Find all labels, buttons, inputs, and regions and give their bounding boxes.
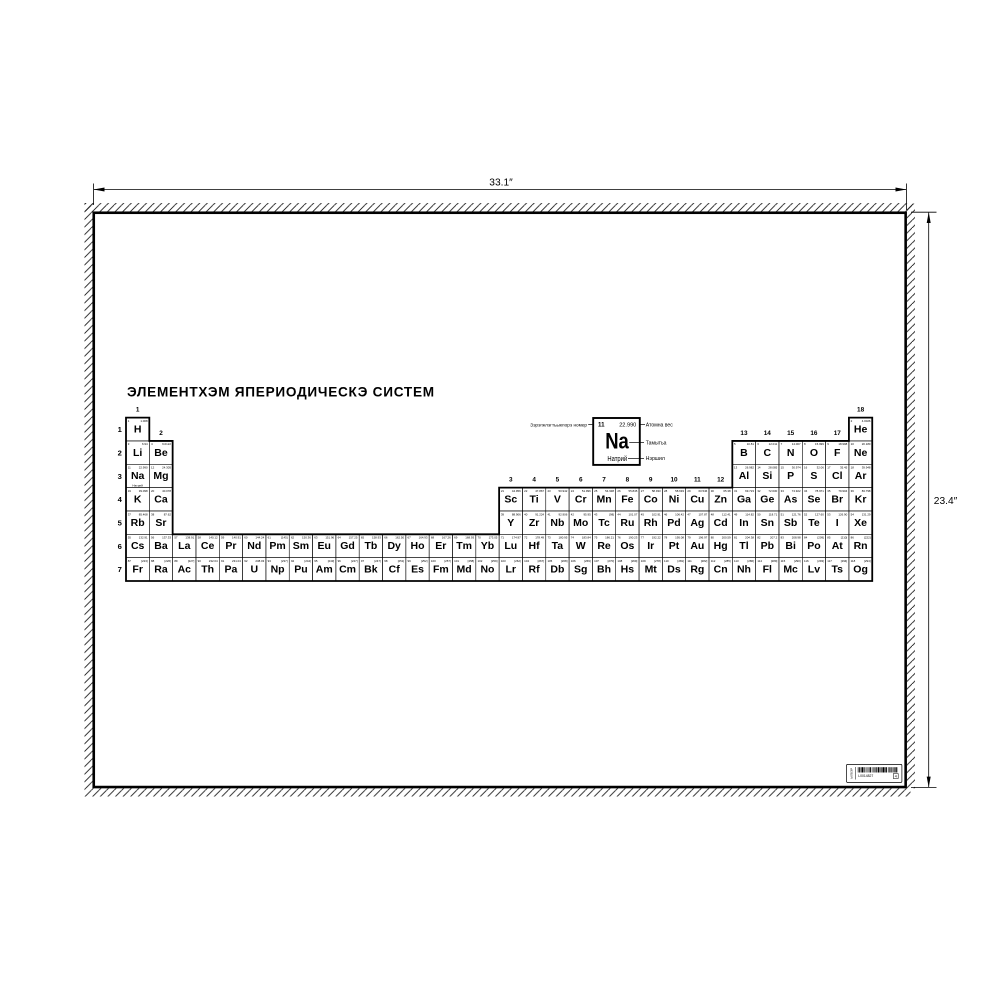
svg-text:Pt: Pt — [669, 540, 680, 552]
svg-text:97: 97 — [361, 559, 365, 563]
svg-text:13: 13 — [734, 466, 738, 470]
svg-text:Gd: Gd — [340, 540, 355, 552]
svg-text:101: 101 — [454, 559, 459, 563]
svg-text:12.011: 12.011 — [769, 442, 778, 446]
svg-text:Зэрэгжлэгтьыклорэ номер: Зэрэгжлэгтьыклорэ номер — [530, 422, 587, 427]
svg-text:Fl: Fl — [763, 564, 772, 576]
svg-text:Ne: Ne — [854, 447, 868, 459]
svg-text:Am: Am — [316, 564, 333, 576]
svg-text:78.971: 78.971 — [815, 489, 824, 493]
svg-text:Ba: Ba — [154, 540, 168, 552]
svg-text:Hf: Hf — [529, 540, 541, 552]
svg-text:Tc: Tc — [598, 517, 610, 529]
svg-text:192.22: 192.22 — [652, 536, 661, 540]
svg-text:35: 35 — [827, 489, 831, 493]
svg-text:72.630: 72.630 — [768, 489, 777, 493]
svg-text:36: 36 — [851, 489, 855, 493]
svg-text:7: 7 — [118, 565, 122, 574]
svg-text:183.84: 183.84 — [582, 536, 591, 540]
svg-text:27: 27 — [641, 489, 645, 493]
svg-text:178.49: 178.49 — [535, 536, 544, 540]
svg-text:Cf: Cf — [389, 564, 401, 576]
svg-text:126.90: 126.90 — [838, 512, 847, 516]
svg-text:Co: Co — [644, 494, 658, 506]
svg-text:15.999: 15.999 — [815, 442, 824, 446]
svg-text:9: 9 — [649, 477, 653, 484]
svg-text:174.97: 174.97 — [512, 536, 521, 540]
svg-text:Ac: Ac — [178, 564, 192, 576]
svg-text:[244]: [244] — [304, 559, 311, 563]
svg-text:Er: Er — [435, 540, 446, 552]
svg-text:Rb: Rb — [131, 517, 145, 529]
svg-text:93: 93 — [268, 559, 272, 563]
svg-text:W: W — [576, 540, 586, 552]
svg-text:238.03: 238.03 — [255, 559, 264, 563]
svg-text:24: 24 — [571, 489, 575, 493]
svg-text:79.904: 79.904 — [838, 489, 847, 493]
svg-text:Ta: Ta — [552, 540, 564, 552]
svg-text:95: 95 — [314, 559, 318, 563]
svg-text:21: 21 — [501, 489, 505, 493]
svg-text:6: 6 — [118, 542, 122, 551]
svg-text:Os: Os — [620, 540, 634, 552]
svg-text:19: 19 — [128, 489, 132, 493]
svg-text:18.998: 18.998 — [838, 442, 847, 446]
svg-text:Pb: Pb — [761, 540, 774, 552]
svg-text:[270]: [270] — [608, 559, 615, 563]
svg-text:87: 87 — [128, 559, 132, 563]
svg-text:54.938: 54.938 — [605, 489, 614, 493]
svg-text:Rf: Rf — [529, 564, 541, 576]
svg-text:Ds: Ds — [667, 564, 681, 576]
svg-text:[269]: [269] — [584, 559, 591, 563]
svg-text:232.04: 232.04 — [209, 559, 218, 563]
svg-text:[209]: [209] — [817, 536, 824, 540]
svg-text:ЫЛБЭР: ЫЛБЭР — [849, 768, 853, 779]
svg-text:Si: Si — [762, 470, 772, 482]
svg-text:Ts: Ts — [832, 564, 844, 576]
svg-text:121.76: 121.76 — [792, 512, 801, 516]
svg-text:Yb: Yb — [481, 540, 494, 552]
svg-text:14.007: 14.007 — [792, 442, 801, 446]
svg-text:23: 23 — [547, 489, 551, 493]
svg-text:16: 16 — [810, 430, 818, 437]
svg-text:131.29: 131.29 — [862, 512, 871, 516]
svg-text:98: 98 — [384, 559, 388, 563]
svg-text:L0014827: L0014827 — [858, 774, 873, 778]
svg-text:58: 58 — [198, 536, 202, 540]
svg-text:94: 94 — [291, 559, 295, 563]
svg-text:144.24: 144.24 — [255, 536, 264, 540]
svg-text:Fr: Fr — [132, 564, 143, 576]
svg-text:Cu: Cu — [690, 494, 704, 506]
svg-text:83: 83 — [781, 536, 785, 540]
svg-text:Pd: Pd — [667, 517, 680, 529]
svg-text:Se: Se — [808, 494, 821, 506]
svg-text:O: O — [810, 447, 818, 459]
svg-text:Tl: Tl — [739, 540, 748, 552]
svg-text:Bk: Bk — [364, 564, 378, 576]
svg-text:Rg: Rg — [690, 564, 704, 576]
svg-text:3: 3 — [509, 477, 513, 484]
svg-text:[227]: [227] — [188, 559, 195, 563]
svg-text:[222]: [222] — [864, 536, 871, 540]
svg-text:66: 66 — [384, 536, 388, 540]
svg-text:14: 14 — [757, 466, 761, 470]
svg-text:Cd: Cd — [714, 517, 728, 529]
svg-text:63: 63 — [314, 536, 318, 540]
svg-text:La: La — [178, 540, 190, 552]
svg-text:[267]: [267] — [538, 559, 545, 563]
svg-text:65.38: 65.38 — [723, 489, 731, 493]
svg-text:31: 31 — [734, 489, 738, 493]
svg-text:162.50: 162.50 — [395, 536, 404, 540]
svg-text:68: 68 — [431, 536, 435, 540]
svg-text:53: 53 — [827, 512, 831, 516]
svg-text:92.906: 92.906 — [559, 512, 568, 516]
svg-text:H: H — [134, 424, 142, 436]
svg-text:196.97: 196.97 — [698, 536, 707, 540]
svg-text:116: 116 — [804, 559, 809, 563]
svg-text:P: P — [787, 470, 794, 482]
svg-text:4: 4 — [895, 775, 897, 779]
svg-text:I: I — [836, 517, 839, 529]
svg-text:39: 39 — [501, 512, 505, 516]
svg-text:42: 42 — [571, 512, 575, 516]
svg-text:18: 18 — [851, 466, 855, 470]
svg-text:23.4″: 23.4″ — [934, 496, 958, 507]
svg-text:Натрий: Натрий — [607, 455, 627, 463]
svg-text:112.41: 112.41 — [722, 512, 731, 516]
svg-text:43: 43 — [594, 512, 598, 516]
svg-text:Натрий: Натрий — [132, 483, 143, 487]
svg-text:[285]: [285] — [724, 559, 731, 563]
svg-text:88: 88 — [151, 559, 155, 563]
svg-text:195.08: 195.08 — [675, 536, 684, 540]
svg-text:38: 38 — [151, 512, 155, 516]
svg-text:6.94: 6.94 — [142, 442, 148, 446]
svg-text:2: 2 — [118, 448, 122, 457]
svg-text:At: At — [832, 540, 844, 552]
svg-text:112: 112 — [711, 559, 716, 563]
svg-text:Sr: Sr — [155, 517, 166, 529]
svg-text:91: 91 — [221, 559, 225, 563]
svg-text:56: 56 — [151, 536, 155, 540]
svg-text:102: 102 — [478, 559, 483, 563]
svg-text:200.59: 200.59 — [722, 536, 731, 540]
svg-text:33: 33 — [781, 489, 785, 493]
svg-text:[258]: [258] — [468, 559, 475, 563]
svg-text:204.38: 204.38 — [745, 536, 754, 540]
svg-text:Sb: Sb — [784, 517, 797, 529]
svg-text:61: 61 — [268, 536, 272, 540]
svg-text:180.95: 180.95 — [559, 536, 568, 540]
svg-text:[243]: [243] — [328, 559, 335, 563]
svg-text:88.906: 88.906 — [512, 512, 521, 516]
svg-text:Db: Db — [550, 564, 564, 576]
svg-text:Тамытьа: Тамытьа — [646, 440, 667, 446]
svg-text:Kr: Kr — [855, 494, 867, 506]
svg-text:[247]: [247] — [351, 559, 358, 563]
svg-text:Zr: Zr — [529, 517, 540, 529]
svg-text:190.23: 190.23 — [628, 536, 637, 540]
svg-text:10.81: 10.81 — [747, 442, 755, 446]
svg-text:30.974: 30.974 — [792, 466, 801, 470]
svg-text:Cl: Cl — [832, 470, 843, 482]
svg-text:[269]: [269] — [631, 559, 638, 563]
svg-text:Pa: Pa — [225, 564, 238, 576]
svg-text:80: 80 — [711, 536, 715, 540]
svg-text:84: 84 — [804, 536, 808, 540]
svg-text:44.956: 44.956 — [512, 489, 521, 493]
svg-text:25: 25 — [594, 489, 598, 493]
svg-text:11: 11 — [128, 466, 131, 470]
svg-text:65: 65 — [361, 536, 365, 540]
svg-text:77: 77 — [641, 536, 645, 540]
svg-text:32.06: 32.06 — [817, 466, 825, 470]
svg-text:Md: Md — [457, 564, 472, 576]
svg-text:41: 41 — [547, 512, 551, 516]
svg-text:118.71: 118.71 — [769, 512, 778, 516]
svg-text:[294]: [294] — [864, 559, 871, 563]
svg-text:6: 6 — [579, 477, 583, 484]
svg-text:[262]: [262] — [514, 559, 521, 563]
svg-text:10: 10 — [670, 477, 678, 484]
svg-text:64: 64 — [338, 536, 342, 540]
svg-text:C: C — [764, 447, 772, 459]
svg-text:Te: Te — [808, 517, 820, 529]
svg-text:50.942: 50.942 — [559, 489, 568, 493]
svg-text:12: 12 — [717, 477, 725, 484]
svg-text:1: 1 — [136, 407, 140, 414]
svg-text:85.468: 85.468 — [139, 512, 148, 516]
svg-text:10: 10 — [851, 442, 855, 446]
svg-text:13: 13 — [740, 430, 748, 437]
svg-text:107.87: 107.87 — [698, 512, 707, 516]
svg-text:[286]: [286] — [748, 559, 755, 563]
svg-text:Pu: Pu — [294, 564, 307, 576]
svg-text:86: 86 — [851, 536, 855, 540]
svg-text:Th: Th — [201, 564, 214, 576]
svg-text:58.693: 58.693 — [675, 489, 684, 493]
svg-text:U: U — [250, 564, 258, 576]
svg-text:71: 71 — [501, 536, 505, 540]
svg-text:132.91: 132.91 — [139, 536, 148, 540]
svg-text:39.948: 39.948 — [862, 466, 871, 470]
svg-text:118: 118 — [851, 559, 856, 563]
svg-text:Ga: Ga — [737, 494, 751, 506]
svg-text:69.723: 69.723 — [745, 489, 754, 493]
svg-text:26: 26 — [617, 489, 621, 493]
svg-text:Cn: Cn — [714, 564, 728, 576]
svg-text:[251]: [251] — [398, 559, 405, 563]
svg-text:4: 4 — [532, 477, 536, 484]
svg-text:20: 20 — [151, 489, 155, 493]
svg-text:5: 5 — [556, 477, 560, 484]
svg-text:17: 17 — [834, 430, 842, 437]
svg-text:Lr: Lr — [506, 564, 517, 576]
svg-text:[259]: [259] — [491, 559, 498, 563]
svg-text:164.93: 164.93 — [419, 536, 428, 540]
svg-text:Ar: Ar — [855, 470, 867, 482]
svg-text:46: 46 — [664, 512, 668, 516]
svg-text:15: 15 — [787, 430, 795, 437]
svg-text:83.798: 83.798 — [862, 489, 871, 493]
svg-text:Ge: Ge — [760, 494, 774, 506]
svg-text:87.62: 87.62 — [164, 512, 172, 516]
svg-text:Sg: Sg — [574, 564, 587, 576]
svg-text:Na: Na — [605, 428, 629, 453]
svg-text:Lv: Lv — [808, 564, 820, 576]
svg-text:Mc: Mc — [783, 564, 798, 576]
svg-text:Ca: Ca — [154, 494, 168, 506]
svg-text:Lu: Lu — [504, 540, 517, 552]
svg-text:Pm: Pm — [269, 540, 285, 552]
svg-text:151.96: 151.96 — [325, 536, 334, 540]
svg-text:Nb: Nb — [550, 517, 564, 529]
svg-text:55.845: 55.845 — [628, 489, 637, 493]
svg-text:28.085: 28.085 — [768, 466, 777, 470]
svg-text:[282]: [282] — [701, 559, 708, 563]
svg-text:114: 114 — [757, 559, 762, 563]
svg-text:72: 72 — [524, 536, 528, 540]
svg-text:47: 47 — [687, 512, 691, 516]
svg-text:[226]: [226] — [165, 559, 172, 563]
svg-text:106.42: 106.42 — [675, 512, 684, 516]
svg-text:Mt: Mt — [645, 564, 658, 576]
svg-text:99: 99 — [408, 559, 412, 563]
svg-text:[294]: [294] — [841, 559, 848, 563]
svg-text:[210]: [210] — [841, 536, 848, 540]
svg-text:35.45: 35.45 — [840, 466, 848, 470]
svg-text:Ho: Ho — [411, 540, 425, 552]
svg-text:[98]: [98] — [609, 512, 614, 516]
svg-text:12: 12 — [151, 466, 155, 470]
svg-text:75: 75 — [594, 536, 598, 540]
svg-text:Au: Au — [690, 540, 704, 552]
svg-text:138.91: 138.91 — [185, 536, 194, 540]
svg-text:54: 54 — [851, 512, 855, 516]
svg-text:ЭЛЕМЕНТХЭМ ЯПЕРИОДИЧЕСКЭ СИСТЕ: ЭЛЕМЕНТХЭМ ЯПЕРИОДИЧЕСКЭ СИСТЕМ — [127, 384, 435, 399]
svg-text:3: 3 — [118, 472, 122, 481]
svg-text:Mg: Mg — [153, 470, 168, 482]
svg-text:Es: Es — [411, 564, 424, 576]
svg-text:127.60: 127.60 — [815, 512, 824, 516]
svg-text:90: 90 — [198, 559, 202, 563]
svg-text:22.990: 22.990 — [139, 466, 148, 470]
svg-text:Re: Re — [597, 540, 611, 552]
svg-text:106: 106 — [571, 559, 576, 563]
svg-text:74.922: 74.922 — [792, 489, 801, 493]
svg-text:1.008: 1.008 — [140, 419, 148, 423]
svg-text:45: 45 — [641, 512, 645, 516]
svg-text:231.04: 231.04 — [232, 559, 241, 563]
svg-text:101.07: 101.07 — [628, 512, 637, 516]
svg-text:N: N — [787, 447, 795, 459]
svg-text:Cs: Cs — [131, 540, 145, 552]
svg-text:Eu: Eu — [318, 540, 331, 552]
svg-text:Атомна вес: Атомна вес — [646, 422, 673, 428]
svg-text:115: 115 — [781, 559, 786, 563]
svg-text:Al: Al — [739, 470, 750, 482]
svg-text:Nd: Nd — [247, 540, 261, 552]
svg-text:He: He — [854, 424, 868, 436]
svg-text:63.546: 63.546 — [698, 489, 707, 493]
svg-text:Li: Li — [133, 447, 142, 459]
svg-text:In: In — [739, 517, 748, 529]
svg-text:V: V — [554, 494, 561, 506]
svg-text:108: 108 — [617, 559, 622, 563]
svg-text:96: 96 — [338, 559, 342, 563]
svg-text:Pr: Pr — [225, 540, 236, 552]
svg-text:70: 70 — [478, 536, 482, 540]
svg-text:62: 62 — [291, 536, 295, 540]
svg-text:34: 34 — [804, 489, 808, 493]
svg-text:11: 11 — [598, 422, 605, 429]
svg-text:107: 107 — [594, 559, 599, 563]
svg-text:Hs: Hs — [621, 564, 635, 576]
svg-text:[257]: [257] — [444, 559, 451, 563]
svg-text:109: 109 — [641, 559, 646, 563]
svg-text:Ti: Ti — [530, 494, 539, 506]
svg-text:50: 50 — [757, 512, 761, 516]
svg-text:Ru: Ru — [620, 517, 634, 529]
svg-text:22: 22 — [524, 489, 528, 493]
svg-text:140.12: 140.12 — [209, 536, 218, 540]
svg-text:158.93: 158.93 — [372, 536, 381, 540]
svg-text:39.098: 39.098 — [139, 489, 148, 493]
svg-text:Rh: Rh — [644, 517, 658, 529]
svg-text:55: 55 — [128, 536, 132, 540]
svg-text:24.305: 24.305 — [162, 466, 171, 470]
svg-text:157.25: 157.25 — [349, 536, 358, 540]
svg-text:58.933: 58.933 — [652, 489, 661, 493]
svg-text:47.867: 47.867 — [535, 489, 544, 493]
svg-text:2: 2 — [159, 430, 163, 437]
svg-text:11: 11 — [694, 477, 701, 484]
svg-text:Ni: Ni — [669, 494, 680, 506]
svg-text:167.26: 167.26 — [442, 536, 451, 540]
svg-text:208.98: 208.98 — [792, 536, 801, 540]
svg-text:Mo: Mo — [573, 517, 588, 529]
svg-text:168.93: 168.93 — [465, 536, 474, 540]
svg-text:Ra: Ra — [154, 564, 168, 576]
svg-text:105: 105 — [547, 559, 552, 563]
svg-text:92: 92 — [244, 559, 248, 563]
svg-text:Hg: Hg — [714, 540, 728, 552]
svg-text:17: 17 — [827, 466, 831, 470]
svg-text:S: S — [810, 470, 817, 482]
svg-text:15: 15 — [781, 466, 785, 470]
svg-text:[247]: [247] — [374, 559, 381, 563]
svg-text:104: 104 — [524, 559, 529, 563]
svg-text:59: 59 — [221, 536, 225, 540]
svg-text:186.21: 186.21 — [605, 536, 614, 540]
svg-text:103: 103 — [501, 559, 506, 563]
svg-text:Cm: Cm — [339, 564, 356, 576]
svg-text:16: 16 — [804, 466, 808, 470]
svg-text:114.82: 114.82 — [745, 512, 754, 516]
svg-text:81: 81 — [734, 536, 738, 540]
svg-text:95.95: 95.95 — [583, 512, 591, 516]
svg-text:60: 60 — [244, 536, 248, 540]
svg-text:30: 30 — [711, 489, 715, 493]
svg-text:110: 110 — [664, 559, 669, 563]
svg-text:Cr: Cr — [575, 494, 587, 506]
svg-text:Ce: Ce — [201, 540, 215, 552]
svg-text:4.0026: 4.0026 — [862, 419, 871, 423]
svg-text:Fe: Fe — [621, 494, 633, 506]
